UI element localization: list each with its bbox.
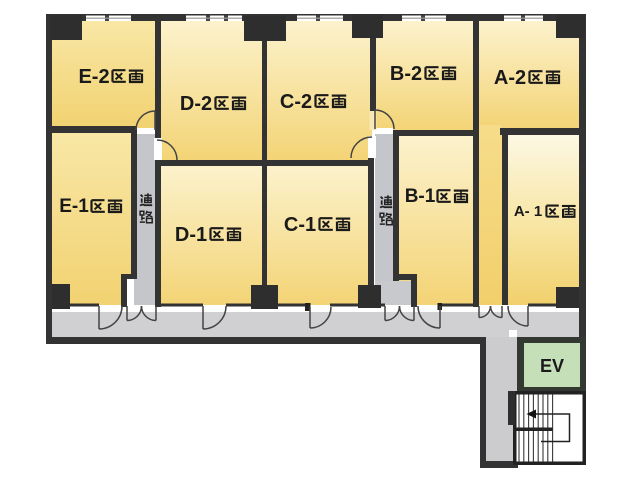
svg-text:B-1: B-1 xyxy=(405,186,436,207)
svg-text:C-1: C-1 xyxy=(284,214,316,236)
svg-text:A-2: A-2 xyxy=(494,67,526,89)
svg-text:B-2: B-2 xyxy=(390,63,422,85)
svg-text:C-2: C-2 xyxy=(280,91,312,113)
svg-text:EV: EV xyxy=(540,356,564,376)
svg-text:E-2: E-2 xyxy=(78,66,109,88)
svg-text:D-2: D-2 xyxy=(180,93,212,115)
svg-text:D-1: D-1 xyxy=(175,224,207,246)
svg-text:A- 1: A- 1 xyxy=(514,203,542,220)
svg-text:E-1: E-1 xyxy=(59,196,89,217)
